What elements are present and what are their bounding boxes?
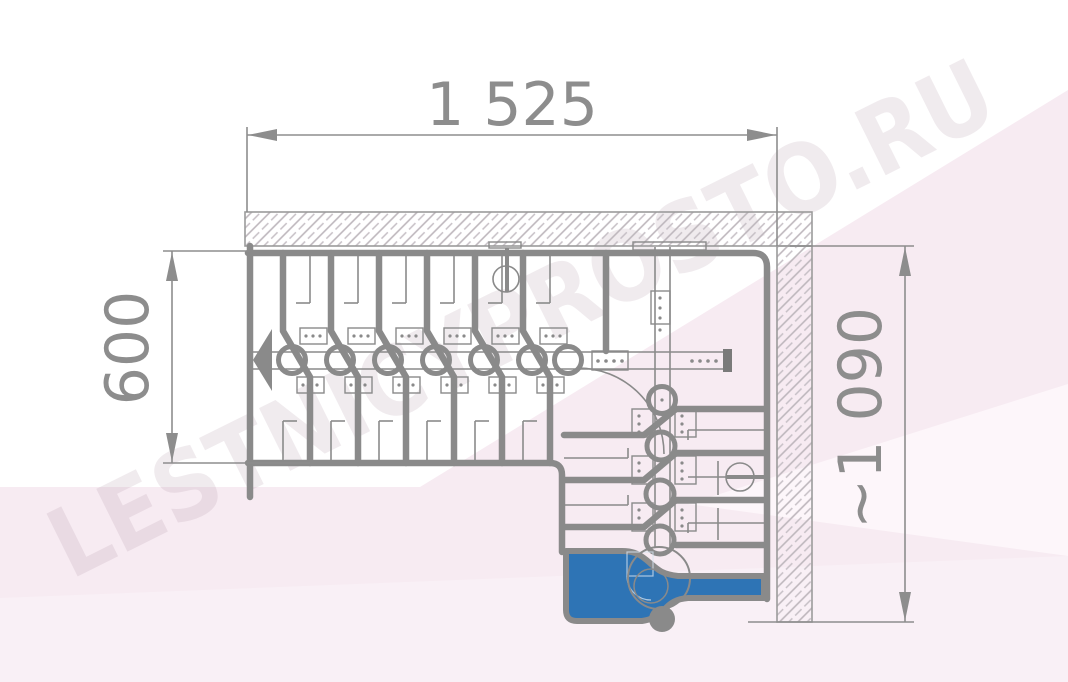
dimension-label-top: 1 525 [426,70,598,140]
beam-end-cap [723,349,732,372]
dimension-label-left: 600 [93,291,163,406]
staircase-plan-drawing: LESTNICYPROSTO.RU [0,0,1068,682]
top-wall [245,212,812,246]
pole-solid-circle [649,606,675,632]
dimension-label-right: ~1 090 [826,307,896,529]
direction-arrow-icon [253,329,272,391]
technical-drawing-canvas: LESTNICYPROSTO.RU [0,0,1068,682]
right-wall [777,246,812,622]
